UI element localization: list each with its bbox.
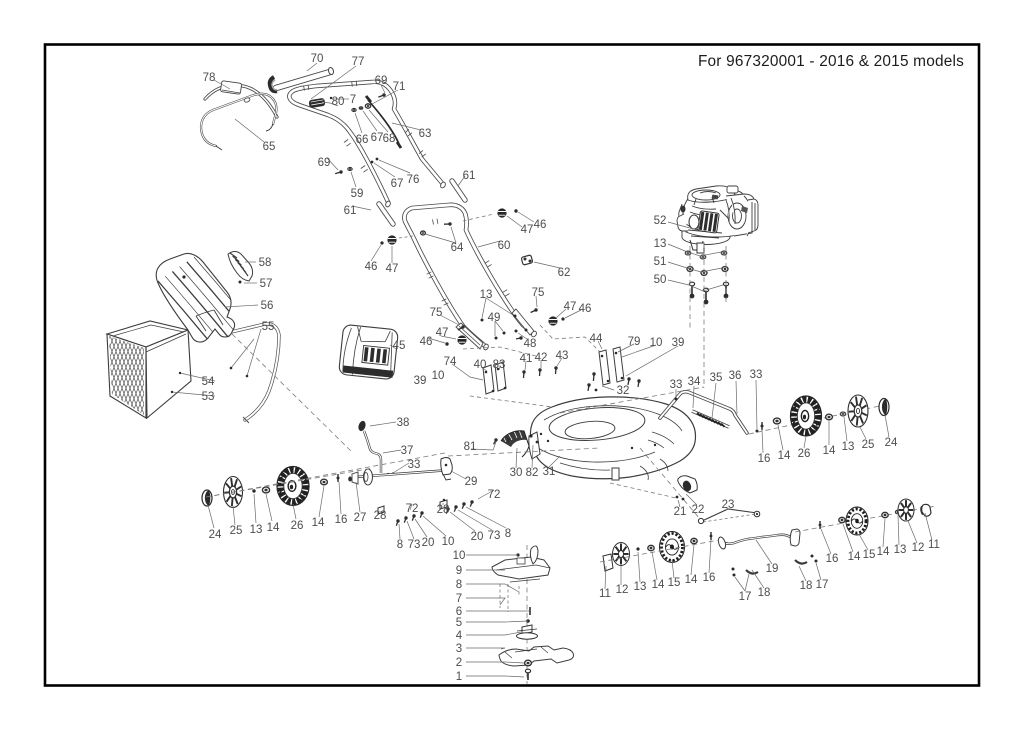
- svg-text:12: 12: [616, 584, 629, 596]
- svg-text:30: 30: [510, 467, 523, 479]
- svg-text:79: 79: [628, 336, 641, 348]
- svg-text:25: 25: [230, 525, 243, 537]
- svg-text:83: 83: [493, 359, 506, 371]
- svg-text:21: 21: [674, 506, 687, 518]
- svg-text:52: 52: [654, 215, 667, 227]
- svg-text:13: 13: [250, 524, 263, 536]
- svg-text:67: 67: [371, 132, 384, 144]
- svg-text:20: 20: [471, 531, 484, 543]
- svg-text:76: 76: [407, 174, 420, 186]
- svg-text:47: 47: [564, 301, 577, 313]
- svg-text:8: 8: [505, 528, 511, 540]
- svg-text:14: 14: [267, 522, 280, 534]
- svg-text:20: 20: [422, 537, 435, 549]
- svg-text:62: 62: [558, 267, 571, 279]
- svg-text:2: 2: [456, 657, 462, 669]
- svg-text:61: 61: [344, 205, 357, 217]
- svg-text:10: 10: [442, 536, 455, 548]
- svg-text:77: 77: [352, 56, 365, 68]
- svg-text:14: 14: [652, 579, 665, 591]
- svg-text:15: 15: [863, 549, 876, 561]
- svg-text:41: 41: [520, 353, 533, 365]
- svg-text:16: 16: [335, 514, 348, 526]
- svg-text:13: 13: [634, 581, 647, 593]
- svg-text:For 967320001 - 2016 & 2015 mo: For 967320001 - 2016 & 2015 models: [698, 53, 964, 70]
- svg-text:3: 3: [456, 643, 462, 655]
- svg-text:42: 42: [535, 352, 548, 364]
- svg-text:26: 26: [291, 520, 304, 532]
- svg-text:4: 4: [456, 630, 463, 642]
- svg-text:37: 37: [401, 445, 414, 457]
- svg-text:32: 32: [617, 385, 630, 397]
- svg-text:69: 69: [318, 157, 331, 169]
- svg-text:31: 31: [543, 466, 556, 478]
- svg-text:24: 24: [209, 529, 222, 541]
- svg-text:46: 46: [365, 261, 378, 273]
- svg-text:14: 14: [778, 450, 791, 462]
- svg-text:8: 8: [456, 579, 462, 591]
- svg-text:14: 14: [685, 574, 698, 586]
- svg-text:14: 14: [312, 517, 325, 529]
- svg-text:36: 36: [729, 370, 742, 382]
- svg-text:47: 47: [386, 263, 399, 275]
- svg-text:13: 13: [654, 238, 667, 250]
- svg-text:11: 11: [599, 588, 611, 600]
- svg-text:51: 51: [654, 256, 667, 268]
- svg-text:18: 18: [758, 587, 771, 599]
- svg-text:23: 23: [722, 499, 735, 511]
- svg-text:43: 43: [556, 350, 569, 362]
- svg-text:22: 22: [692, 504, 705, 516]
- svg-text:70: 70: [311, 53, 324, 65]
- svg-text:45: 45: [393, 340, 406, 352]
- svg-text:39: 39: [672, 337, 685, 349]
- svg-text:16: 16: [758, 453, 771, 465]
- svg-text:46: 46: [534, 219, 547, 231]
- svg-text:7: 7: [350, 94, 356, 106]
- svg-text:13: 13: [480, 289, 493, 301]
- svg-text:16: 16: [826, 553, 839, 565]
- svg-text:73: 73: [488, 530, 501, 542]
- svg-text:29: 29: [465, 476, 478, 488]
- svg-text:47: 47: [436, 327, 449, 339]
- svg-text:47: 47: [521, 224, 534, 236]
- svg-text:38: 38: [397, 417, 410, 429]
- svg-text:40: 40: [474, 359, 487, 371]
- svg-text:73: 73: [408, 539, 421, 551]
- svg-text:12: 12: [912, 542, 925, 554]
- svg-text:39: 39: [414, 375, 427, 387]
- svg-text:10: 10: [432, 370, 445, 382]
- svg-text:27: 27: [354, 512, 367, 524]
- svg-text:46: 46: [420, 336, 433, 348]
- svg-text:10: 10: [650, 337, 663, 349]
- svg-text:66: 66: [356, 134, 369, 146]
- svg-text:53: 53: [202, 391, 215, 403]
- svg-text:61: 61: [463, 170, 476, 182]
- svg-text:80: 80: [332, 96, 345, 108]
- svg-text:33: 33: [408, 459, 421, 471]
- svg-text:72: 72: [406, 503, 419, 515]
- svg-text:13: 13: [842, 441, 855, 453]
- svg-text:82: 82: [526, 467, 539, 479]
- svg-text:57: 57: [260, 278, 273, 290]
- svg-text:19: 19: [766, 563, 779, 575]
- svg-text:46: 46: [579, 303, 592, 315]
- svg-text:81: 81: [464, 441, 477, 453]
- svg-text:14: 14: [848, 551, 861, 563]
- svg-text:28: 28: [437, 504, 450, 516]
- svg-text:34: 34: [688, 376, 701, 388]
- svg-text:13: 13: [894, 544, 907, 556]
- svg-text:65: 65: [263, 141, 276, 153]
- svg-text:16: 16: [703, 572, 716, 584]
- svg-text:59: 59: [351, 188, 364, 200]
- svg-text:49: 49: [488, 312, 501, 324]
- svg-text:67: 67: [391, 178, 404, 190]
- svg-text:48: 48: [524, 338, 537, 350]
- svg-text:60: 60: [498, 240, 511, 252]
- svg-text:78: 78: [203, 72, 216, 84]
- svg-text:72: 72: [488, 489, 501, 501]
- svg-text:56: 56: [261, 300, 274, 312]
- svg-text:71: 71: [393, 81, 406, 93]
- svg-text:69: 69: [375, 75, 388, 87]
- svg-text:24: 24: [885, 437, 898, 449]
- svg-text:9: 9: [456, 565, 462, 577]
- svg-text:50: 50: [654, 274, 667, 286]
- svg-text:8: 8: [397, 539, 403, 551]
- svg-text:28: 28: [374, 510, 387, 522]
- svg-text:44: 44: [590, 333, 603, 345]
- svg-text:18: 18: [800, 580, 813, 592]
- svg-text:63: 63: [419, 128, 432, 140]
- svg-text:75: 75: [532, 287, 545, 299]
- svg-text:33: 33: [750, 369, 763, 381]
- svg-text:58: 58: [259, 257, 272, 269]
- svg-text:15: 15: [668, 577, 681, 589]
- svg-text:33: 33: [670, 379, 683, 391]
- svg-text:55: 55: [262, 321, 275, 333]
- svg-text:68: 68: [383, 133, 396, 145]
- svg-text:17: 17: [816, 579, 829, 591]
- svg-text:25: 25: [862, 439, 875, 451]
- svg-text:17: 17: [739, 591, 752, 603]
- svg-text:14: 14: [823, 445, 836, 457]
- svg-text:7: 7: [456, 593, 462, 605]
- svg-text:64: 64: [451, 242, 464, 254]
- svg-text:35: 35: [710, 372, 723, 384]
- svg-text:74: 74: [444, 356, 457, 368]
- svg-text:75: 75: [430, 307, 443, 319]
- svg-text:10: 10: [453, 550, 466, 562]
- svg-text:5: 5: [456, 617, 462, 629]
- svg-text:11: 11: [928, 539, 940, 551]
- svg-text:14: 14: [877, 546, 890, 558]
- svg-text:54: 54: [202, 376, 215, 388]
- svg-text:26: 26: [798, 448, 811, 460]
- svg-text:1: 1: [456, 671, 462, 683]
